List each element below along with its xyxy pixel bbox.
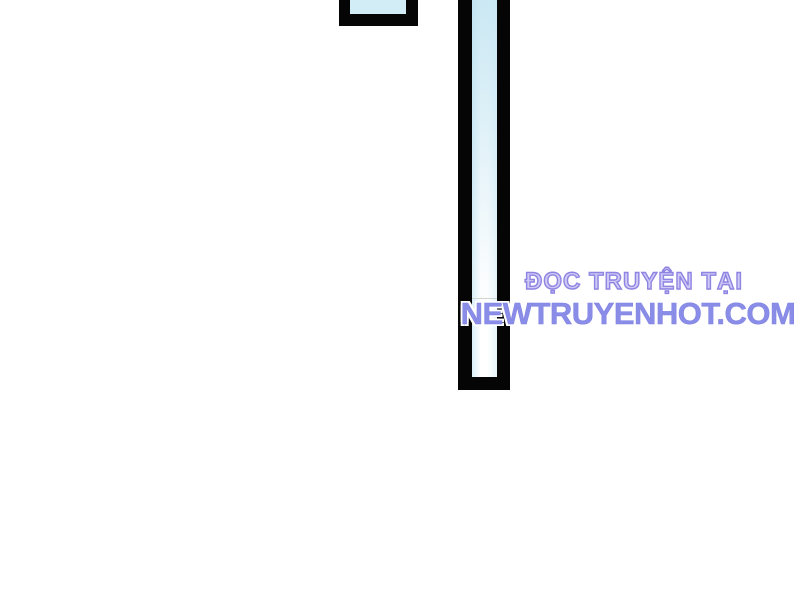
comic-panel-bar-tall <box>458 0 510 390</box>
watermark-line-1: ĐỌC TRUYỆN TẠI <box>525 268 743 296</box>
site-watermark: ĐỌC TRUYỆN TẠI NEWTRUYENHOT.COM <box>0 0 800 600</box>
sketch-line <box>472 298 497 299</box>
watermark-line-2: NEWTRUYENHOT.COM <box>461 296 796 332</box>
comic-panel-fragment-small <box>339 0 418 26</box>
manga-page: ĐỌC TRUYỆN TẠI NEWTRUYENHOT.COM <box>0 0 800 600</box>
